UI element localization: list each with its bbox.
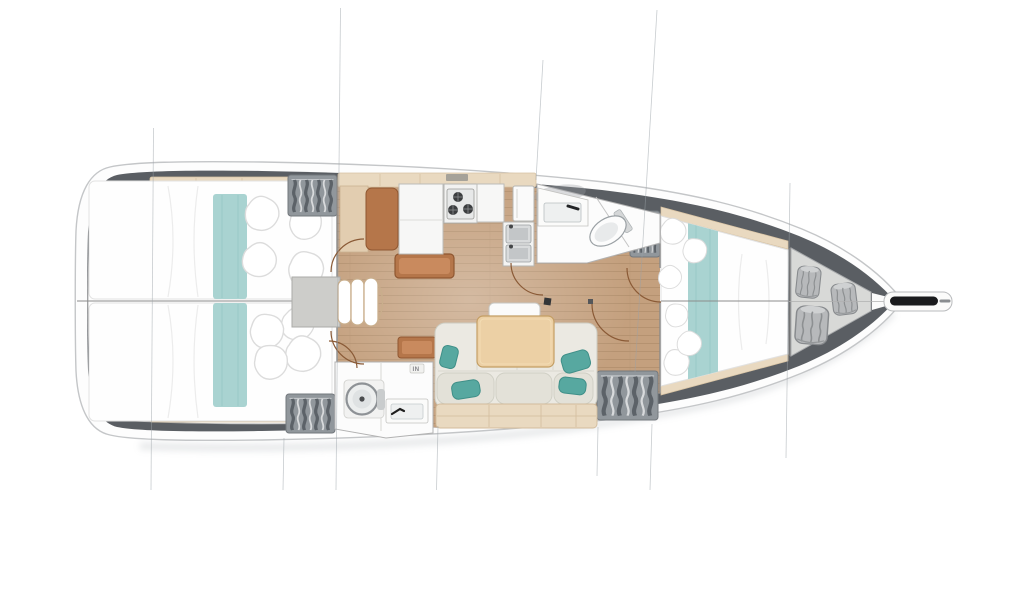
engine-box: [292, 277, 340, 327]
fender-bag-2: [830, 282, 858, 316]
nav-seat-cushion: [366, 188, 398, 250]
wardrobe-aft-starboard: [286, 394, 335, 433]
yacht-floor-plan-page: IN: [0, 0, 1024, 600]
stove: [444, 184, 477, 223]
galley-counter-2: [477, 184, 504, 222]
wardrobe-salon-starboard: [597, 371, 658, 420]
anchor-sprit: [884, 292, 952, 311]
aft-head-chip-label: IN: [413, 366, 420, 373]
wardrobe-aft-port: [288, 175, 337, 216]
fridge: [513, 186, 534, 221]
head-washbasin: [544, 203, 581, 222]
galley-vent-hatch: [446, 174, 468, 181]
companionway-steps: [338, 278, 383, 326]
dining-table: [477, 316, 554, 367]
coffee-table-top: [399, 258, 450, 274]
galley-counter: [399, 184, 443, 254]
nav-bench-base: [340, 186, 368, 252]
door-hinge-dot: [588, 299, 593, 304]
double-sink: [503, 222, 534, 266]
salon-side-chest-top: [402, 341, 432, 354]
mast-post: [544, 298, 552, 306]
aft-head: IN: [335, 362, 433, 438]
yacht-interior-floor-plan-svg: IN: [0, 0, 1024, 600]
fender-bag-1: [795, 265, 822, 299]
fender-bag-3: [794, 305, 829, 345]
